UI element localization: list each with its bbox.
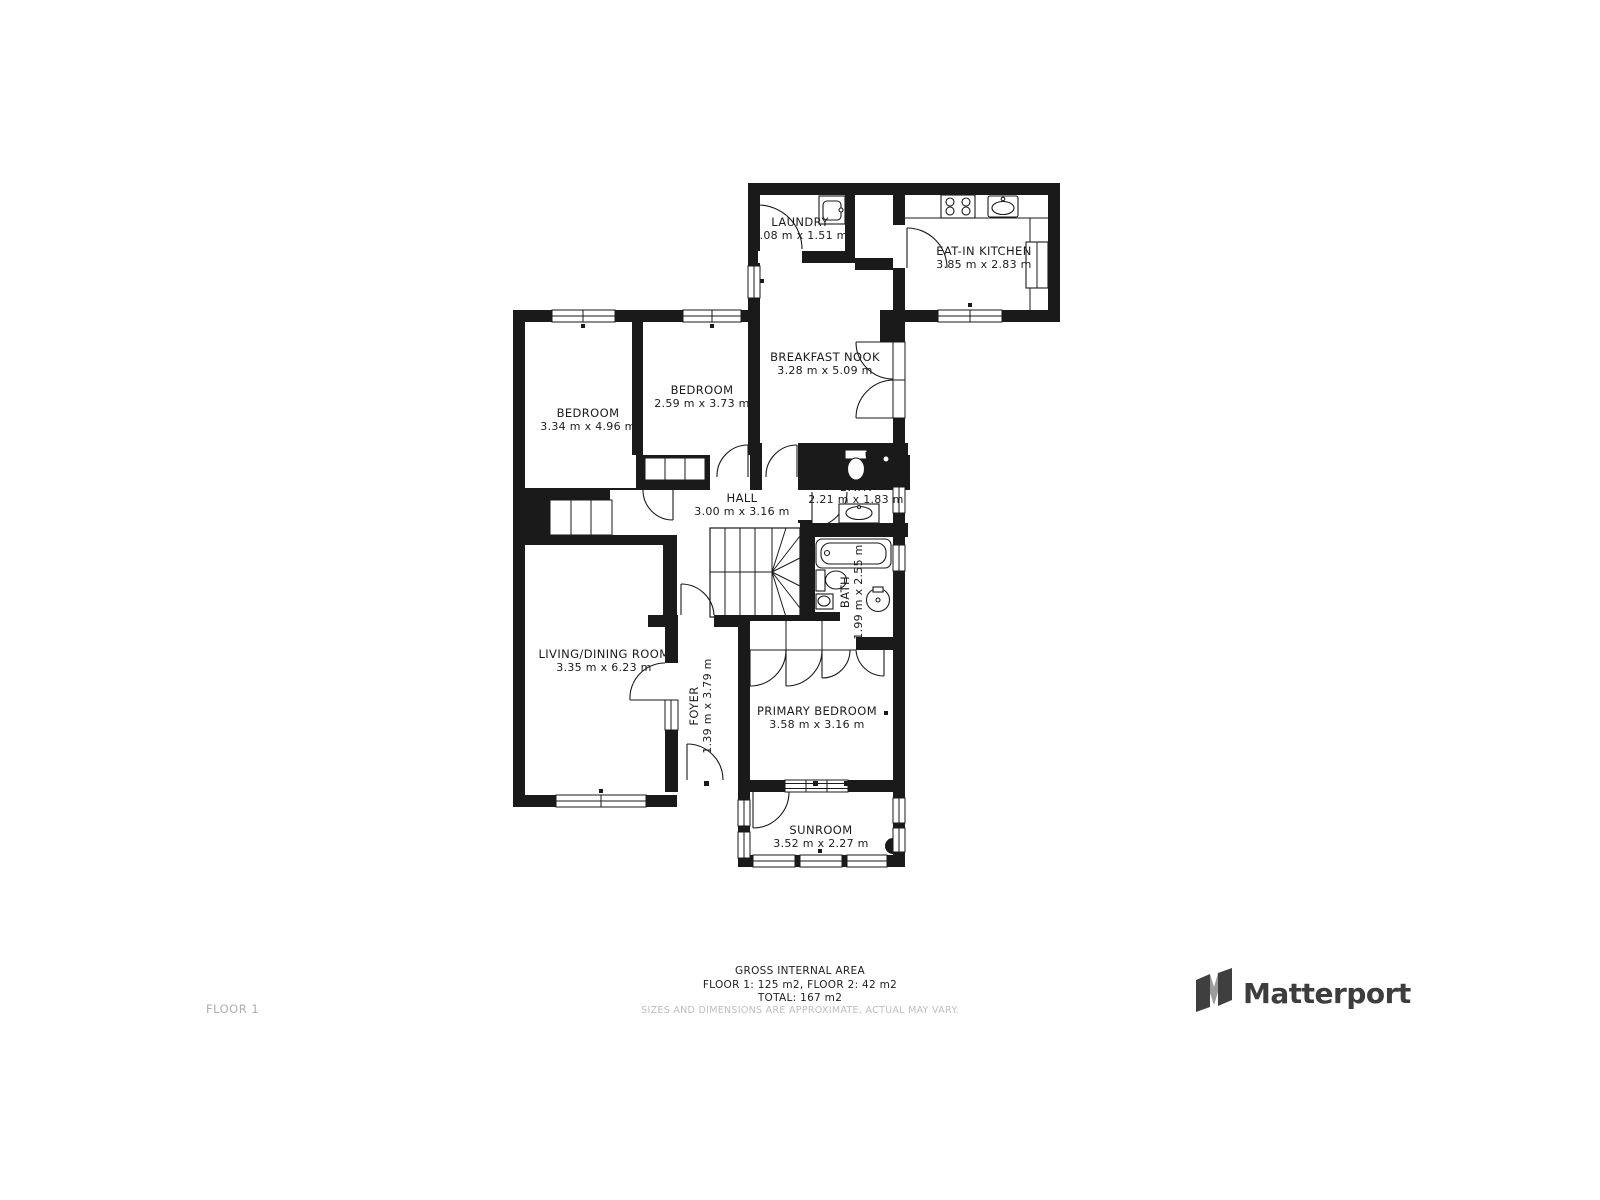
- stairs: [710, 528, 800, 617]
- stove-icon: [941, 195, 975, 218]
- french-doors: [893, 342, 905, 418]
- window: [556, 795, 646, 807]
- room-dims-bath2: 1.99 m x 2.55 m: [852, 544, 865, 639]
- room-label-foyer: FOYER: [687, 686, 701, 725]
- door-arc: [681, 584, 714, 615]
- door-arc: [822, 650, 850, 678]
- window: [893, 545, 905, 571]
- room-dims-laundry: 2.08 m x 1.51 m: [752, 229, 847, 242]
- pedestal-sink-icon: [867, 587, 890, 612]
- door-arc: [856, 650, 884, 676]
- room-label-bedroom2: BEDROOM: [671, 383, 734, 397]
- floorplan-svg: LAUNDRY 2.08 m x 1.51 m EAT-IN KITCHEN 3…: [0, 0, 1600, 1200]
- disclaimer: SIZES AND DIMENSIONS ARE APPROXIMATE, AC…: [641, 1005, 959, 1016]
- door-arc: [750, 650, 786, 686]
- room-label-bath2: BATH: [838, 576, 852, 608]
- window: [847, 855, 887, 867]
- closet-bedroom1: [550, 500, 612, 535]
- door-arc: [856, 380, 893, 418]
- room-dims-kitchen: 3.85 m x 2.83 m: [936, 258, 1031, 271]
- room-label-kitchen: EAT-IN KITCHEN: [936, 244, 1031, 258]
- room-dims-primary: 3.58 m x 3.16 m: [769, 718, 864, 731]
- window: [893, 828, 905, 852]
- room-label-laundry: LAUNDRY: [771, 215, 829, 229]
- window: [738, 832, 750, 858]
- room-label-primary: PRIMARY BEDROOM: [757, 704, 877, 718]
- matterport-m-icon: [1196, 968, 1232, 1012]
- window: [938, 310, 1002, 322]
- matterport-logo: Matterport: [1196, 968, 1411, 1012]
- room-dims-foyer: 1.39 m x 3.79 m: [701, 658, 714, 753]
- matterport-wordmark: Matterport: [1243, 977, 1411, 1010]
- room-dims-breakfast-nook: 3.28 m x 5.09 m: [777, 364, 872, 377]
- window: [683, 310, 741, 322]
- gross-area-floors: FLOOR 1: 125 m2, FLOOR 2: 42 m2: [703, 979, 897, 991]
- room-label-hall: HALL: [727, 491, 758, 505]
- room-label-bedroom1: BEDROOM: [557, 406, 620, 420]
- floor-label: FLOOR 1: [206, 1002, 259, 1016]
- window: [800, 855, 842, 867]
- room-label-living: LIVING/DINING ROOM: [538, 647, 669, 661]
- footer: GROSS INTERNAL AREA FLOOR 1: 125 m2, FLO…: [641, 965, 959, 1016]
- door-arc: [786, 650, 822, 686]
- window: [665, 700, 678, 730]
- window: [753, 855, 795, 867]
- gross-area-title: GROSS INTERNAL AREA: [735, 965, 865, 977]
- wall-light-icon: [885, 838, 893, 854]
- kitchen-sink-icon: [988, 196, 1018, 217]
- small-sink-icon: [816, 594, 833, 609]
- window: [738, 800, 750, 826]
- window: [552, 310, 615, 322]
- room-dims-bedroom2: 2.59 m x 3.73 m: [654, 397, 749, 410]
- door-arc: [753, 792, 789, 828]
- room-dims-hall: 3.00 m x 3.16 m: [694, 505, 789, 518]
- room-label-sunroom: SUNROOM: [789, 823, 852, 837]
- window: [893, 798, 905, 823]
- room-label-bath1: BATH: [840, 480, 872, 494]
- gross-area-total: TOTAL: 167 m2: [757, 992, 842, 1004]
- room-dims-living: 3.35 m x 6.23 m: [556, 661, 651, 674]
- room-dims-bedroom1: 3.34 m x 4.96 m: [540, 420, 635, 433]
- room-label-breakfast-nook: BREAKFAST NOOK: [770, 350, 880, 364]
- vanity-sink-icon: [839, 504, 879, 523]
- room-dims-sunroom: 3.52 m x 2.27 m: [773, 837, 868, 850]
- window: [748, 266, 760, 298]
- closet-bedroom2: [645, 458, 705, 480]
- floorplan-page: LAUNDRY 2.08 m x 1.51 m EAT-IN KITCHEN 3…: [0, 0, 1600, 1200]
- room-dims-bath1: 2.21 m x 1.83 m: [808, 493, 903, 506]
